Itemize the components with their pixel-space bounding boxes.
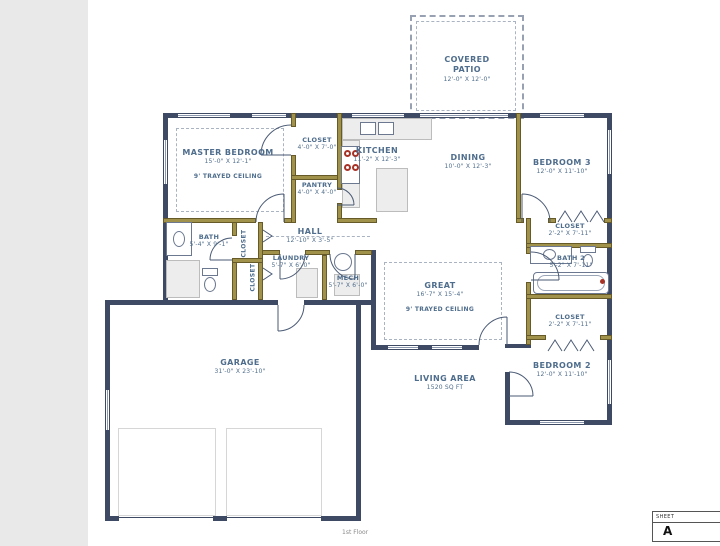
bifold-door-chevron: [564, 340, 578, 351]
room-dims: 12'-0" X 11'-10": [516, 371, 608, 379]
wall-segment: [505, 372, 510, 424]
room-name: COVERED PATIO: [437, 55, 497, 76]
washer-dryer: [296, 268, 318, 298]
stove-burner: [344, 164, 351, 171]
room-dims: 4'-0" X 7'-0": [294, 144, 340, 152]
living-area-value: 1520 SQ FT: [398, 384, 492, 392]
interior-wall: [232, 222, 237, 236]
room-dims: 15'-0" X 12'-1": [158, 158, 298, 166]
sheet-header: SHEET: [653, 512, 720, 523]
stove-burner: [352, 164, 359, 171]
room-name: LAUNDRY: [262, 254, 320, 262]
room-label-kitchen: KITCHEN 11'-2" X 12'-3": [344, 146, 410, 164]
window: [388, 345, 418, 350]
room-label-covered-patio: COVERED PATIO 12'-0" X 12'-0": [417, 55, 517, 84]
room-label-bedroom-2: BEDROOM 2 12'-0" X 11'-10": [516, 361, 608, 379]
garage-door: [118, 516, 214, 521]
sheet-number: A: [653, 523, 720, 541]
room-dims: 2'-2" X 7'-11": [530, 321, 610, 329]
room-name: CLOSET: [294, 136, 340, 144]
room-label-mech: MECH 5'-7" X 6'-0": [324, 274, 372, 290]
room-label-master-closet: CLOSET 4'-0" X 7'-0": [294, 136, 340, 152]
room-dims: 5'-4" X 9'-1": [186, 241, 232, 249]
window: [540, 420, 584, 425]
water-heater: [334, 253, 352, 271]
room-label-garage: GARAGE 31'-0" X 23'-10": [178, 358, 302, 376]
room-dims: 4'-0" X 4'-0": [294, 189, 340, 197]
wall-segment: [304, 300, 376, 305]
room-label-hall: HALL 12'-10" X 3'-5": [276, 227, 344, 245]
room-name: GREAT: [388, 281, 492, 291]
room-dims: 16'-7" X 15'-4": [388, 291, 492, 299]
bifold-door-chevron: [590, 211, 604, 222]
room-name: BATH: [186, 233, 232, 241]
patio-sliding-door: [420, 113, 508, 118]
interior-wall: [232, 260, 237, 300]
window: [540, 113, 584, 118]
room-note: 9' TRAYED CEILING: [158, 173, 298, 181]
room-dims: 11'-2" X 12'-3": [344, 156, 410, 164]
room-label-bath-2: BATH 2 5'-2" X 7'-11": [534, 254, 608, 270]
room-dims: 12'-10" X 3'-5": [276, 237, 344, 245]
room-name: HALL: [276, 227, 344, 237]
floor-label: 1st Floor: [342, 529, 368, 536]
room-dims: 5'-7" X 6'-0": [262, 262, 320, 270]
room-label-dining: DINING 10'-0" X 12'-3": [424, 153, 512, 171]
room-name: GARAGE: [178, 358, 302, 368]
sheet-title-block: SHEET A: [652, 511, 720, 542]
living-area-annotation: LIVING AREA 1520 SQ FT: [398, 374, 492, 392]
room-label-closet-r2: CLOSET 2'-2" X 7'-11": [530, 313, 610, 329]
room-name: BEDROOM 2: [516, 361, 608, 371]
interior-wall: [526, 294, 612, 299]
window: [607, 130, 612, 174]
window: [105, 390, 110, 430]
room-label-hall-closet-1: CLOSET: [241, 222, 248, 266]
room-label-laundry: LAUNDRY 5'-7" X 6'-0": [262, 254, 320, 270]
wall-segment: [105, 300, 278, 305]
kitchen-sink-basin: [378, 122, 394, 135]
room-dims: 5'-2" X 7'-11": [534, 262, 608, 270]
floor-plan-sheet: MASTER BEDROOM 15'-0" X 12'-1" 9' TRAYED…: [0, 0, 720, 546]
garage-parking-pad: [226, 428, 322, 516]
room-name: DINING: [424, 153, 512, 163]
window: [252, 113, 286, 118]
kitchen-island: [376, 168, 408, 212]
room-dims: 2'-2" X 7'-11": [530, 230, 610, 238]
shower: [166, 260, 200, 298]
wall-segment: [356, 305, 361, 516]
room-dims: 12'-0" X 12'-0": [417, 76, 517, 84]
room-dims: 10'-0" X 12'-3": [424, 163, 512, 171]
bathtub-basin: [537, 275, 605, 291]
room-label-bath: BATH 5'-4" X 9'-1": [186, 233, 232, 249]
bath-sink: [173, 231, 185, 247]
interior-wall: [232, 258, 263, 263]
living-area-label: LIVING AREA: [398, 374, 492, 384]
bifold-door-chevron: [548, 340, 562, 351]
room-label-pantry: PANTRY 4'-0" X 4'-0": [294, 181, 340, 197]
window: [432, 345, 462, 350]
room-label-bedroom-3: BEDROOM 3 12'-0" X 11'-10": [518, 158, 606, 176]
interior-wall: [526, 335, 546, 340]
room-dims: 5'-7" X 6'-0": [324, 282, 372, 290]
room-label-closet-r1: CLOSET 2'-2" X 7'-11": [530, 222, 610, 238]
toilet-tank: [202, 268, 218, 276]
interior-wall: [337, 218, 377, 223]
room-name: MASTER BEDROOM: [158, 148, 298, 158]
garage-parking-pad: [118, 428, 216, 516]
toilet-tank: [580, 246, 596, 253]
room-name: BEDROOM 3: [518, 158, 606, 168]
interior-wall: [516, 218, 524, 223]
tub-faucet: [600, 279, 605, 284]
interior-wall: [291, 113, 296, 127]
room-name: PANTRY: [294, 181, 340, 189]
room-name: MECH: [324, 274, 372, 282]
room-name: KITCHEN: [344, 146, 410, 156]
interior-wall: [291, 175, 342, 180]
room-name: BATH 2: [534, 254, 608, 262]
room-name: CLOSET: [530, 313, 610, 321]
bifold-door-chevron: [558, 211, 572, 222]
room-label-hall-closet-2: CLOSET: [250, 256, 257, 300]
room-dims: 12'-0" X 11'-10": [518, 168, 606, 176]
toilet-bowl: [204, 277, 216, 292]
interior-wall: [355, 250, 372, 255]
room-label-master-bedroom: MASTER BEDROOM 15'-0" X 12'-1" 9' TRAYED…: [158, 148, 298, 181]
garage-door: [226, 516, 322, 521]
door-swing-arc: [278, 305, 304, 331]
bifold-door-chevron: [580, 340, 594, 351]
interior-wall: [600, 335, 612, 340]
window: [178, 113, 230, 118]
room-dims: 31'-0" X 23'-10": [178, 368, 302, 376]
page-margin: [0, 0, 88, 546]
room-name: CLOSET: [530, 222, 610, 230]
room-label-great: GREAT 16'-7" X 15'-4" 9' TRAYED CEILING: [388, 281, 492, 314]
room-note: 9' TRAYED CEILING: [388, 306, 492, 314]
bifold-door-chevron: [574, 211, 588, 222]
kitchen-sink-basin: [360, 122, 376, 135]
